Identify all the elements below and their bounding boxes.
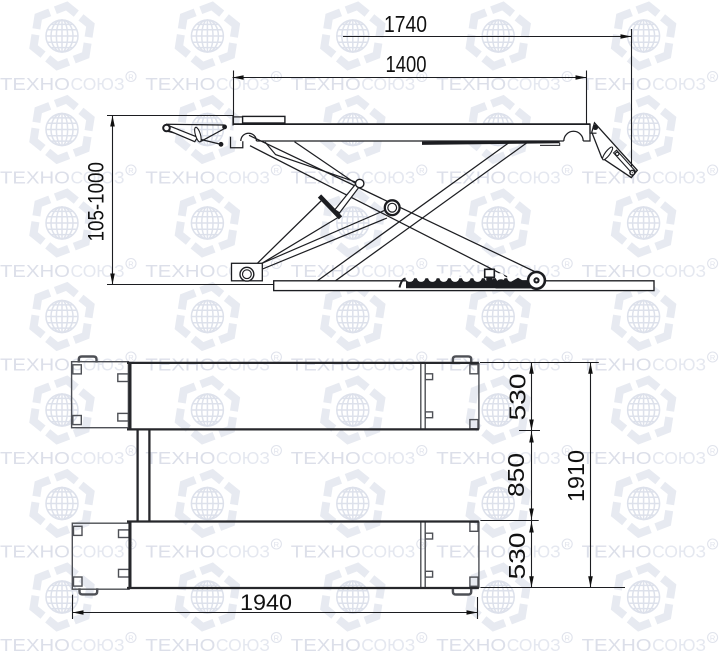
- svg-text:1940: 1940: [240, 590, 292, 615]
- svg-text:530: 530: [505, 374, 531, 421]
- svg-text:105-1000: 105-1000: [83, 162, 108, 241]
- svg-text:850: 850: [503, 453, 529, 497]
- svg-text:530: 530: [504, 533, 530, 580]
- svg-text:1740: 1740: [384, 11, 427, 37]
- svg-text:1400: 1400: [386, 51, 427, 77]
- svg-text:1910: 1910: [563, 450, 589, 502]
